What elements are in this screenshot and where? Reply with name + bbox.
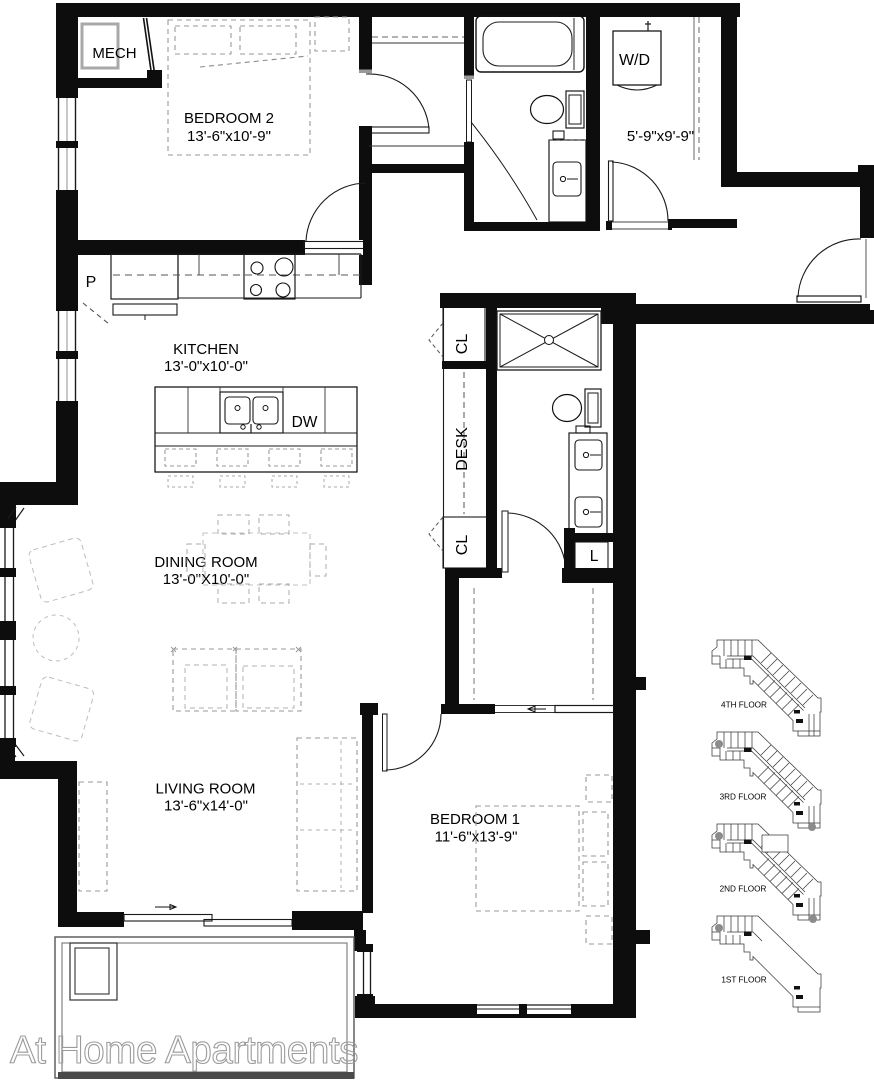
svg-text:L: L — [590, 548, 599, 565]
svg-text:CL: CL — [454, 334, 471, 355]
svg-text:DESK: DESK — [454, 427, 471, 471]
svg-text:13'-6"x14'-0": 13'-6"x14'-0" — [164, 798, 248, 815]
svg-text:KITCHEN: KITCHEN — [173, 341, 239, 358]
svg-text:W/D: W/D — [619, 52, 650, 69]
svg-text:P: P — [86, 274, 97, 291]
svg-text:DW: DW — [292, 414, 318, 431]
svg-text:13'-0"x10'-0": 13'-0"x10'-0" — [164, 358, 248, 375]
svg-text:LIVING ROOM: LIVING ROOM — [155, 781, 255, 798]
svg-text:BEDROOM 1: BEDROOM 1 — [430, 811, 520, 828]
svg-text:CL: CL — [454, 535, 471, 556]
svg-text:13'-6"x10'-9": 13'-6"x10'-9" — [187, 128, 271, 145]
svg-text:3RD FLOOR: 3RD FLOOR — [720, 793, 767, 802]
svg-text:5'-9"x9'-9": 5'-9"x9'-9" — [627, 128, 694, 145]
svg-text:At Home Apartments: At Home Apartments — [10, 1029, 358, 1072]
svg-text:1ST FLOOR: 1ST FLOOR — [721, 976, 766, 985]
svg-text:4TH FLOOR: 4TH FLOOR — [721, 701, 767, 710]
svg-text:MECH: MECH — [92, 45, 136, 62]
svg-text:BEDROOM 2: BEDROOM 2 — [184, 110, 274, 127]
svg-text:2ND FLOOR: 2ND FLOOR — [720, 885, 767, 894]
svg-text:DINING ROOM: DINING ROOM — [154, 554, 257, 571]
